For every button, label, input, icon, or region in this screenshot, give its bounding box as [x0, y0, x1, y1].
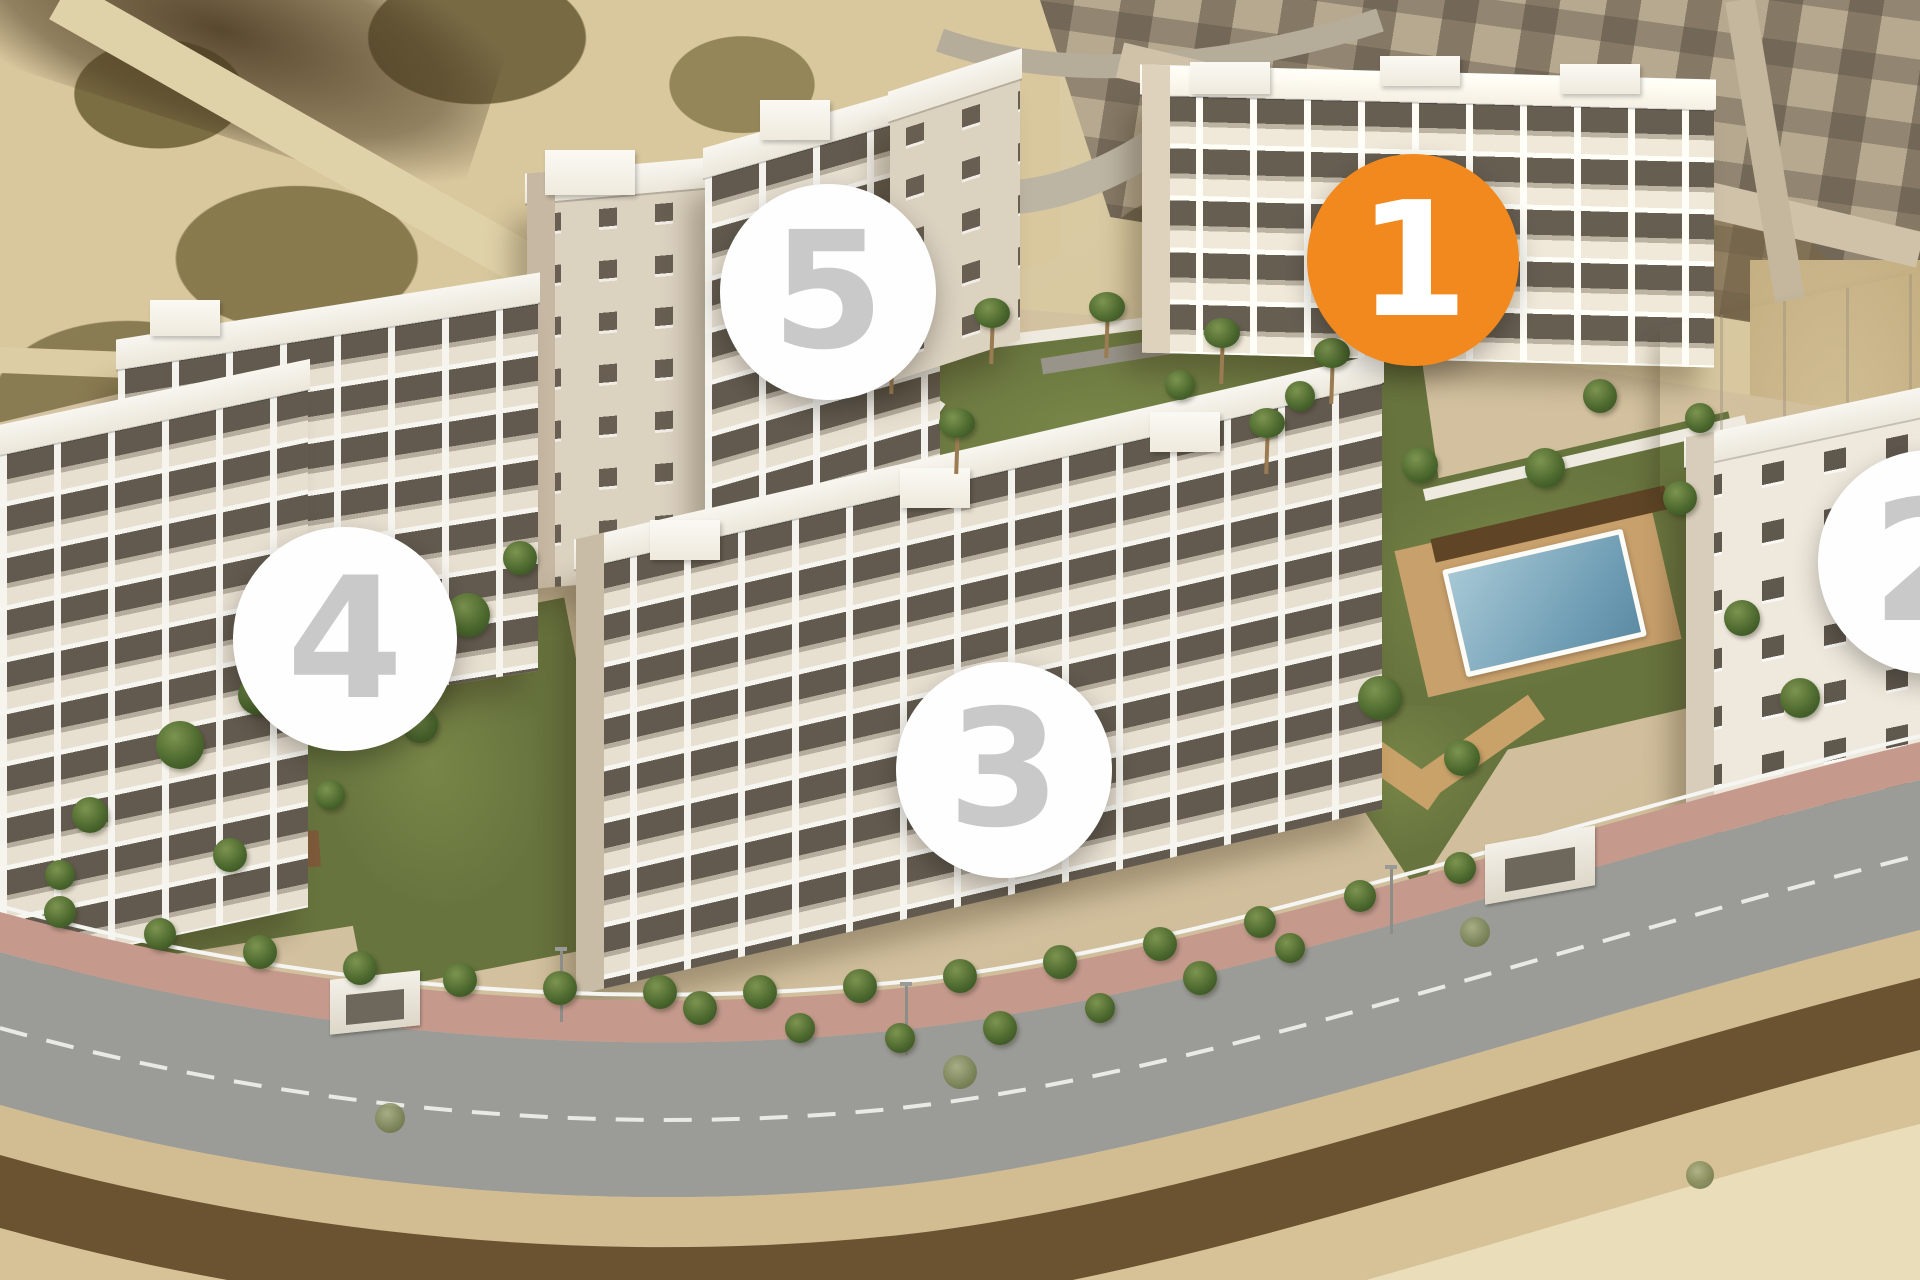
bush: [1165, 370, 1195, 400]
shrub: [1686, 1161, 1714, 1189]
roof-structure: [760, 100, 830, 140]
marker-number: 2: [1872, 478, 1920, 646]
building-marker-4[interactable]: 4: [233, 527, 457, 751]
bush: [443, 963, 477, 997]
bush: [1244, 906, 1276, 938]
palm-tree: [1089, 292, 1125, 322]
bush: [243, 935, 277, 969]
palm-tree: [974, 298, 1010, 328]
bush: [72, 797, 108, 833]
marker-number: 3: [948, 689, 1061, 851]
bush: [1724, 600, 1760, 636]
tree: [1780, 678, 1820, 718]
bush: [543, 971, 577, 1005]
shrub: [943, 1055, 977, 1089]
bush: [943, 959, 977, 993]
bush: [1663, 481, 1697, 515]
bush: [643, 975, 677, 1009]
roof-structure: [900, 468, 970, 508]
palm-tree: [1204, 318, 1240, 348]
bush: [44, 896, 76, 928]
bush: [343, 951, 377, 985]
building-marker-1[interactable]: 1: [1307, 154, 1519, 366]
bush: [144, 918, 176, 950]
roof-structure: [150, 300, 220, 336]
marker-number: 1: [1358, 181, 1469, 340]
bush: [1685, 403, 1715, 433]
palm-tree: [1314, 338, 1350, 368]
street-lamp: [1390, 868, 1393, 934]
roof-structure: [1380, 56, 1460, 86]
bush: [1085, 993, 1115, 1023]
bush: [1275, 933, 1305, 963]
roof-structure: [1190, 62, 1270, 94]
bush: [683, 991, 717, 1025]
bush: [1583, 379, 1617, 413]
tree: [1525, 448, 1565, 488]
bush: [1183, 961, 1217, 995]
building-side-face: [576, 533, 604, 995]
tree: [1358, 676, 1402, 720]
shrub: [375, 1103, 405, 1133]
bush: [1344, 880, 1376, 912]
site-aerial-render: 1 2 3 4 5: [0, 0, 1920, 1280]
roof-structure: [650, 520, 720, 560]
entrance-gate: [330, 970, 420, 1034]
shrub: [1460, 917, 1490, 947]
tree: [156, 721, 204, 769]
building-marker-5[interactable]: 5: [720, 184, 936, 400]
roof-structure: [545, 150, 635, 195]
bush: [1444, 852, 1476, 884]
bush: [885, 1023, 915, 1053]
roof-structure: [1150, 412, 1220, 452]
bush: [1402, 447, 1438, 483]
bush: [1043, 945, 1077, 979]
bush: [785, 1013, 815, 1043]
bush: [213, 838, 247, 872]
roof-structure: [1560, 64, 1640, 94]
bush: [843, 969, 877, 1003]
bush: [503, 541, 537, 575]
bush: [983, 1011, 1017, 1045]
bush: [743, 975, 777, 1009]
bush: [1444, 740, 1480, 776]
marker-number: 5: [772, 211, 885, 373]
palm-tree: [939, 408, 975, 438]
palm-tree: [1249, 408, 1285, 438]
bush: [1143, 927, 1177, 961]
building-side-face: [1142, 65, 1170, 354]
bush: [1285, 381, 1315, 411]
marker-number: 4: [287, 555, 404, 723]
building-marker-3[interactable]: 3: [896, 662, 1112, 878]
bush: [45, 860, 75, 890]
bush: [315, 780, 345, 810]
